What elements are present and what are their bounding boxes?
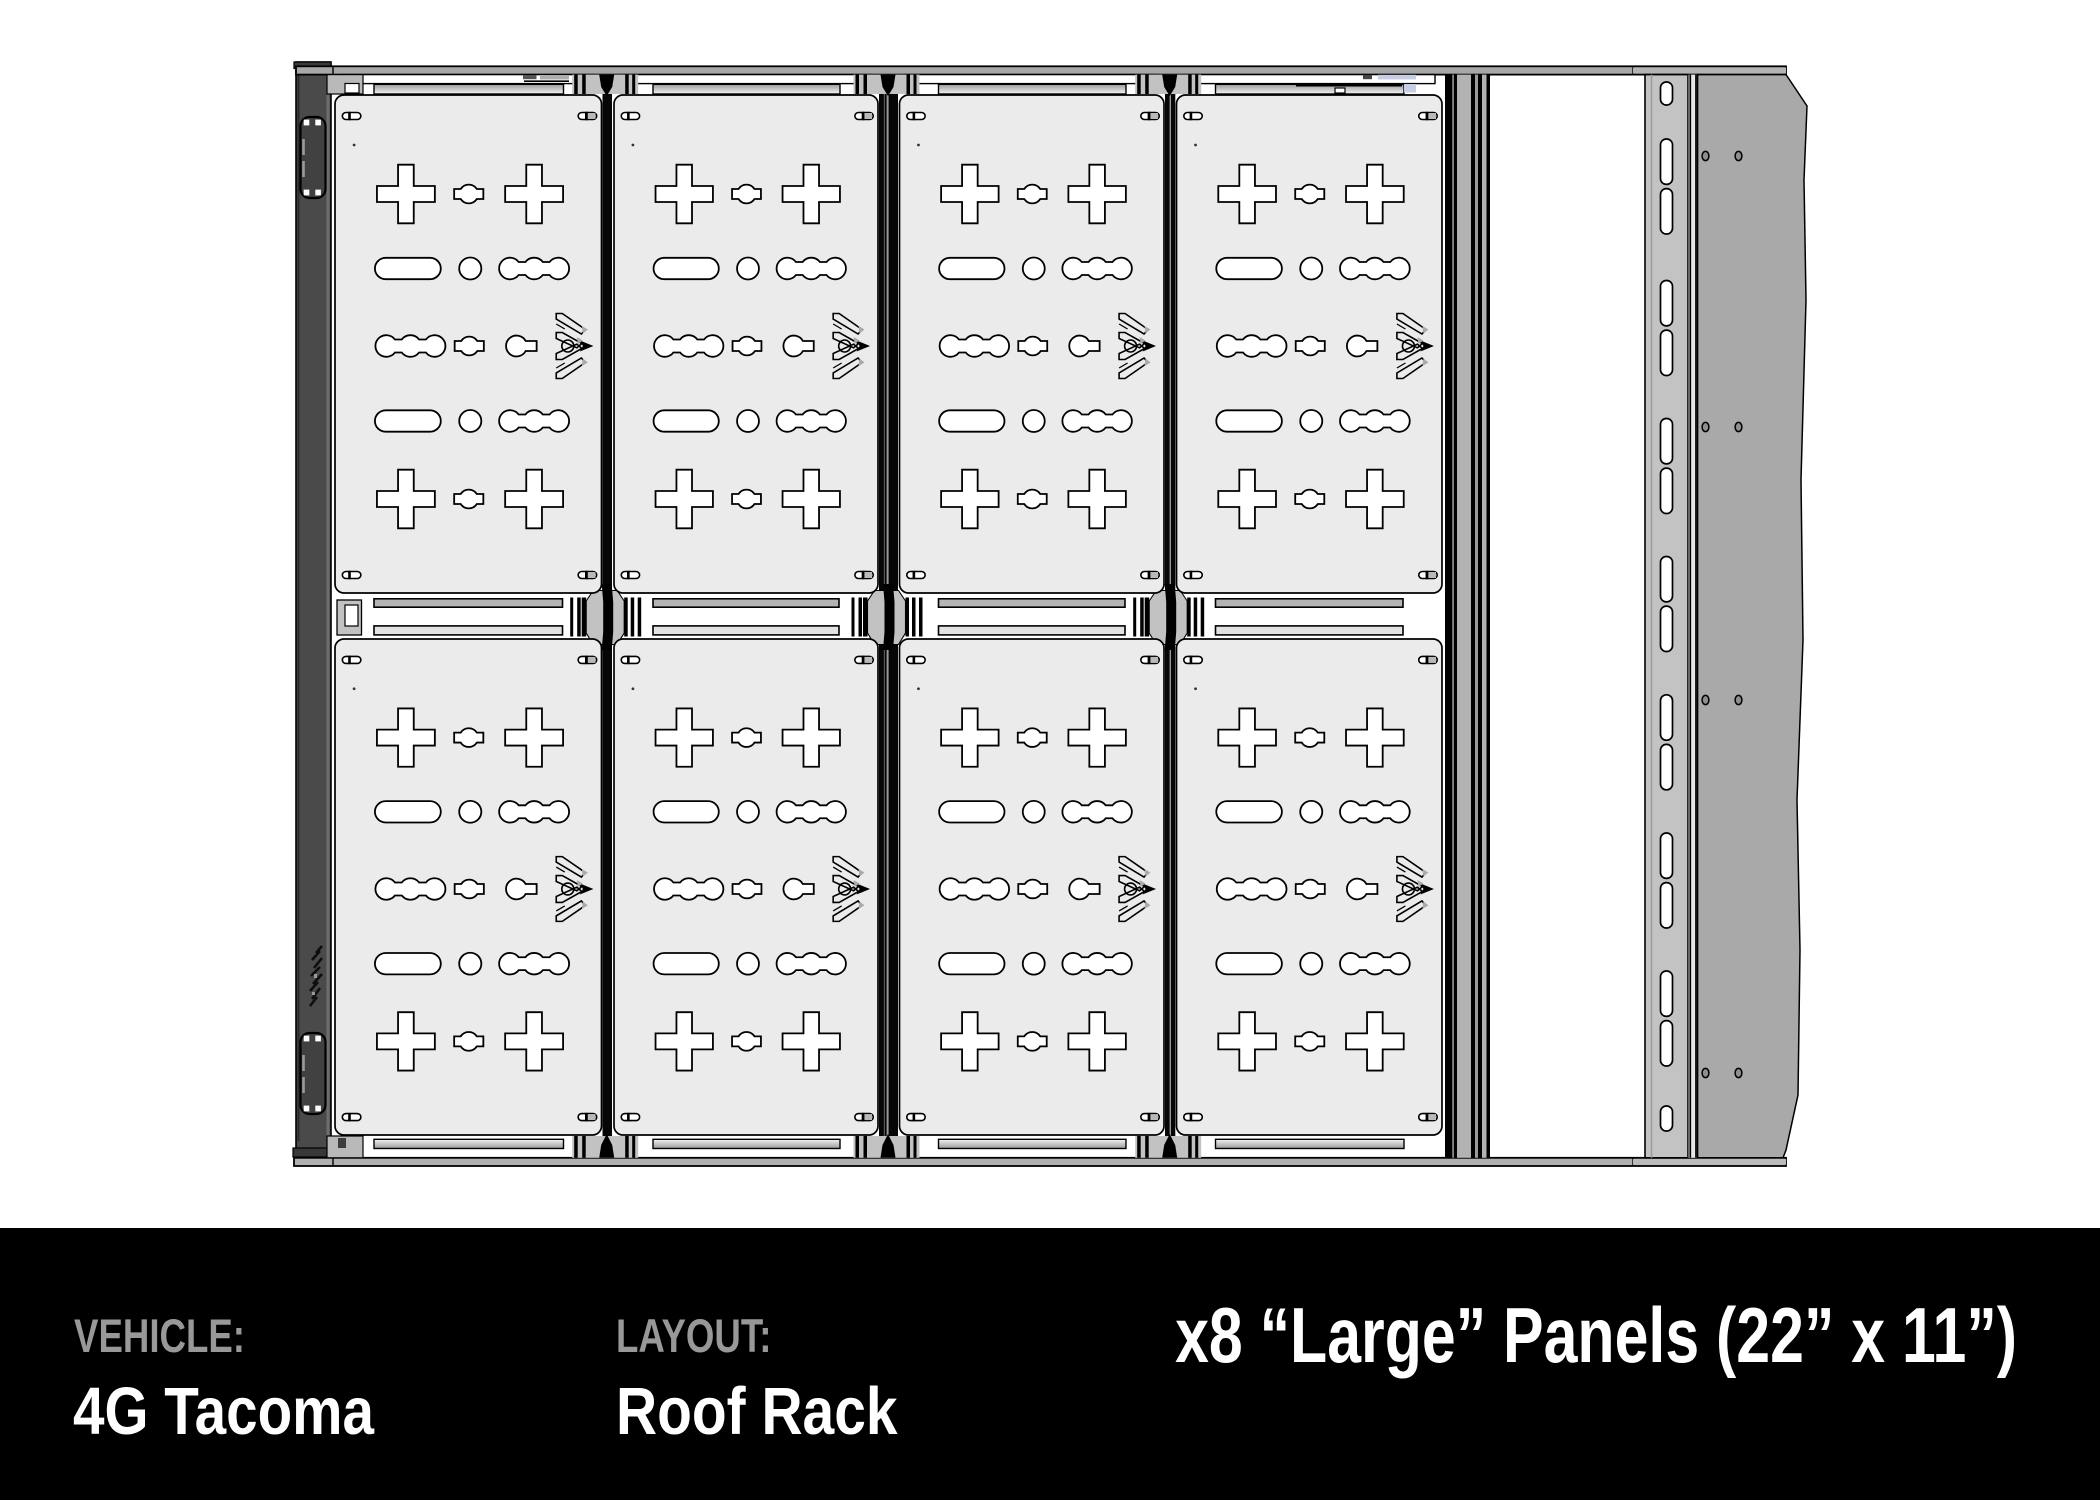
svg-text:x8 “Large” Panels (22” x 11”): x8 “Large” Panels (22” x 11”) xyxy=(1175,1292,2017,1379)
svg-text:4G Tacoma: 4G Tacoma xyxy=(73,1375,374,1450)
svg-text:VEHICLE:: VEHICLE: xyxy=(74,1310,245,1362)
svg-text:Roof Rack: Roof Rack xyxy=(616,1375,898,1449)
svg-text:LAYOUT:: LAYOUT: xyxy=(616,1310,771,1362)
